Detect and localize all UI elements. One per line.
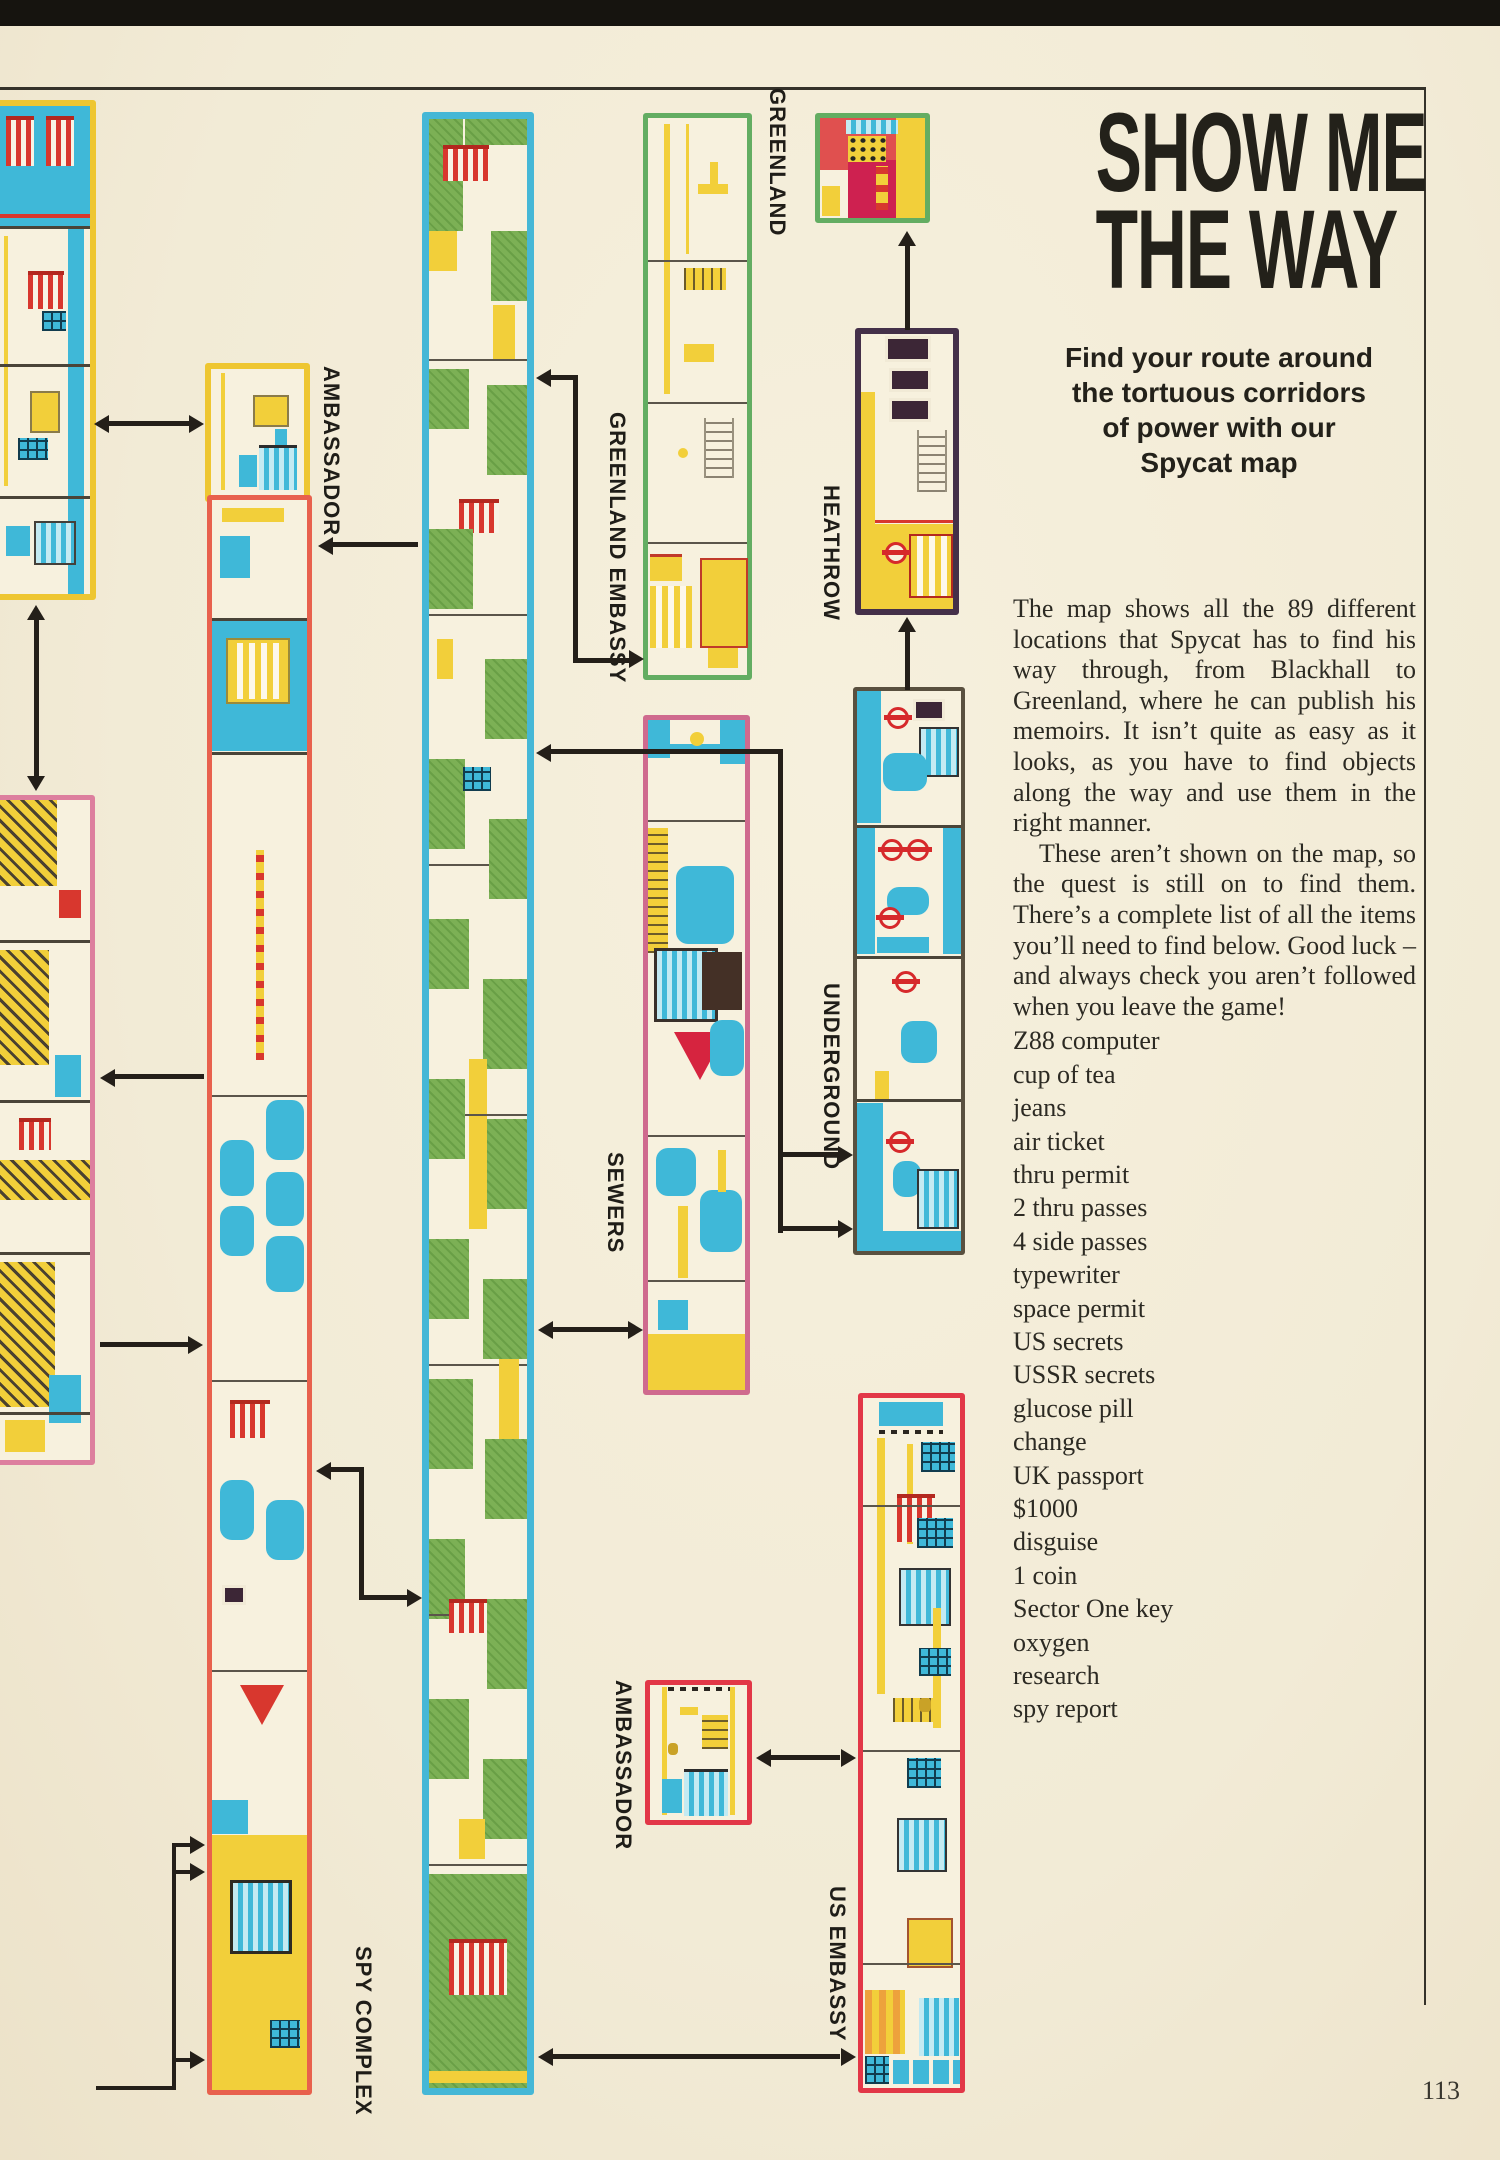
map-underground <box>853 687 965 1255</box>
map-detail <box>212 1380 307 1382</box>
map-greenland-embassy <box>643 113 752 680</box>
arrow-head <box>841 1749 856 1767</box>
map-detail <box>684 1769 728 1816</box>
map-detail <box>429 359 527 361</box>
map-detail <box>483 1759 527 1839</box>
map-detail <box>487 385 527 475</box>
map-detail <box>34 521 76 565</box>
arrow-line <box>783 1226 840 1231</box>
map-detail <box>437 639 453 679</box>
standfirst-line: the tortuous corridors <box>1020 375 1418 410</box>
map-detail <box>259 445 297 490</box>
arrow-line <box>172 1843 176 2067</box>
map-detail <box>907 1758 941 1788</box>
arrow-line <box>573 658 631 663</box>
map-detail <box>266 1100 304 1160</box>
map-detail <box>429 1379 473 1469</box>
list-item: disguise <box>1013 1525 1416 1558</box>
map-detail <box>668 1743 678 1755</box>
page-number: 113 <box>1380 2076 1460 2106</box>
map-detail <box>49 1375 81 1423</box>
map-detail <box>28 271 64 309</box>
map-detail <box>730 1687 735 1815</box>
map-detail <box>933 2060 949 2084</box>
map-detail <box>857 1099 961 1102</box>
map-detail <box>846 120 898 134</box>
map-detail <box>943 828 961 954</box>
map-detail <box>889 368 931 392</box>
map-detail <box>883 753 927 791</box>
map-ambassador-top <box>205 363 310 502</box>
map-detail <box>863 1963 960 1965</box>
map-detail <box>59 890 81 918</box>
map-detail <box>897 1818 947 1872</box>
map-detail <box>4 236 8 486</box>
underground-roundel-icon <box>879 907 901 929</box>
map-detail <box>429 1699 469 1779</box>
top-black-bar <box>0 0 1500 26</box>
map-detail <box>459 1819 485 1859</box>
arrow-head <box>538 1321 553 1339</box>
map-heathrow <box>855 328 959 615</box>
arrow-line <box>172 2067 176 2090</box>
map-detail <box>857 956 961 959</box>
map-detail <box>6 116 34 166</box>
map-detail <box>919 1998 959 2056</box>
map-detail <box>648 1280 745 1282</box>
map-detail <box>690 732 704 746</box>
map-detail <box>822 186 840 216</box>
map-ambassador-bottom <box>645 1680 752 1825</box>
map-detail <box>0 214 90 218</box>
map-detail <box>919 1648 951 1676</box>
label-spy-complex: SPY COMPLEX <box>350 1946 376 2116</box>
column-rule <box>1424 87 1426 2005</box>
map-spy-complex-strip <box>422 112 534 2095</box>
map-detail <box>863 1750 960 1752</box>
list-item: air ticket <box>1013 1125 1416 1158</box>
list-item: thru permit <box>1013 1158 1416 1191</box>
map-detail <box>662 1779 682 1813</box>
map-detail <box>913 2060 929 2084</box>
arrow-line <box>114 1074 204 1079</box>
arrow-head <box>316 1462 331 1480</box>
map-detail <box>429 529 473 609</box>
map-detail <box>30 391 60 433</box>
map-strip-left-top <box>0 100 96 600</box>
underground-roundel-icon <box>887 707 909 729</box>
map-detail <box>879 1430 943 1434</box>
map-detail <box>221 373 225 490</box>
map-detail <box>449 1939 507 1995</box>
map-detail <box>704 418 734 478</box>
map-detail <box>253 395 289 427</box>
arrow-head <box>756 1749 771 1767</box>
underground-roundel-icon <box>885 542 907 564</box>
map-detail <box>270 2020 300 2048</box>
list-item: Z88 computer <box>1013 1024 1416 1057</box>
map-detail <box>648 820 745 822</box>
list-item: 4 side passes <box>1013 1225 1416 1258</box>
map-detail <box>700 1190 742 1252</box>
map-detail <box>700 558 748 648</box>
arrow-line <box>770 1755 840 1760</box>
arrow-head <box>189 415 204 433</box>
map-detail <box>702 1715 728 1749</box>
list-item: research <box>1013 1659 1416 1692</box>
arrow-line <box>108 421 198 426</box>
map-detail <box>678 448 688 458</box>
map-us-embassy <box>858 1393 965 2093</box>
map-detail <box>710 162 718 186</box>
paragraph: These aren’t shown on the map, so the qu… <box>1013 839 1416 1023</box>
map-detail <box>222 1585 246 1605</box>
map-detail <box>230 1400 270 1438</box>
list-item: jeans <box>1013 1091 1416 1124</box>
map-detail <box>896 118 925 218</box>
map-detail <box>220 1206 254 1256</box>
arrow-line <box>905 246 910 330</box>
map-detail <box>907 1918 953 1968</box>
map-detail <box>0 1252 90 1255</box>
arrow-head <box>94 415 109 433</box>
label-sewers: SEWERS <box>602 1152 628 1253</box>
map-detail <box>491 231 527 301</box>
list-item: $1000 <box>1013 1492 1416 1525</box>
label-us-embassy: US EMBASSY <box>824 1886 850 2041</box>
map-detail <box>702 952 742 1010</box>
paragraph: The map shows all the 89 different locat… <box>1013 594 1416 839</box>
list-item: cup of tea <box>1013 1058 1416 1091</box>
map-detail <box>648 260 747 262</box>
map-detail <box>877 937 929 953</box>
arrow-head <box>898 617 916 632</box>
map-detail <box>6 526 30 556</box>
article-body: The map shows all the 89 different locat… <box>1013 594 1416 1726</box>
map-detail <box>0 940 90 943</box>
map-detail <box>684 268 726 290</box>
map-detail <box>917 1169 959 1229</box>
map-detail <box>720 720 745 764</box>
map-detail <box>893 2060 909 2084</box>
map-detail <box>650 586 692 648</box>
list-item: typewriter <box>1013 1258 1416 1291</box>
arrow-head <box>838 1220 853 1238</box>
map-detail <box>857 1231 961 1251</box>
label-underground: UNDERGROUND <box>818 983 844 1170</box>
arrow-head <box>536 369 551 387</box>
map-sewers <box>643 715 750 1395</box>
map-detail <box>239 455 257 487</box>
arrow-line <box>96 2086 174 2090</box>
map-detail <box>443 145 489 181</box>
map-detail <box>5 1420 45 1452</box>
map-detail <box>42 311 66 331</box>
map-detail <box>0 1100 90 1103</box>
arrow-line <box>905 632 910 690</box>
arrow-head <box>100 1069 115 1087</box>
map-detail <box>0 364 90 367</box>
arrow-head <box>190 2051 205 2069</box>
map-detail <box>19 1118 51 1150</box>
map-detail <box>718 1150 726 1192</box>
arrow-head <box>27 776 45 791</box>
map-detail <box>429 369 469 429</box>
map-detail <box>684 344 714 362</box>
map-detail <box>865 1990 905 2054</box>
map-detail <box>493 305 515 359</box>
map-detail <box>487 1119 527 1209</box>
arrow-head <box>407 1589 422 1607</box>
map-greenland <box>815 113 930 223</box>
map-detail <box>429 759 465 849</box>
arrow-line <box>34 620 39 776</box>
arrow-line <box>359 1467 364 1600</box>
map-detail <box>875 520 953 523</box>
map-detail <box>861 392 875 609</box>
map-detail <box>212 1800 248 1834</box>
label-greenland: GREENLAND <box>764 88 790 236</box>
list-item: oxygen <box>1013 1626 1416 1659</box>
map-detail <box>648 1135 745 1137</box>
map-detail <box>220 1480 254 1540</box>
masthead: SHOW ME THE WAY <box>1020 104 1418 298</box>
map-detail <box>668 1687 730 1691</box>
list-item: change <box>1013 1425 1416 1458</box>
map-detail <box>220 1140 254 1196</box>
map-detail <box>0 950 49 1065</box>
arrow-head <box>629 650 644 668</box>
arrow-head <box>898 231 916 246</box>
map-detail <box>0 496 90 499</box>
map-detail <box>0 1262 55 1407</box>
map-detail <box>848 160 896 218</box>
map-detail <box>429 231 457 271</box>
item-list: Z88 computer cup of tea jeans air ticket… <box>1013 1024 1416 1726</box>
map-detail <box>499 1359 519 1439</box>
label-greenland-embassy: GREENLAND EMBASSY <box>604 412 630 683</box>
standfirst-line: Find your route around <box>1020 340 1418 375</box>
map-detail <box>489 819 527 899</box>
list-item: spy report <box>1013 1692 1416 1725</box>
map-detail <box>429 1864 527 1866</box>
arrow-head <box>318 537 333 555</box>
map-detail <box>708 648 738 668</box>
map-detail <box>212 1670 307 1672</box>
arrow-head <box>838 1146 853 1164</box>
underground-roundel-icon <box>895 971 917 993</box>
map-detail <box>483 979 527 1069</box>
arrow-head <box>27 605 45 620</box>
map-detail <box>648 828 668 953</box>
map-detail <box>463 767 491 791</box>
map-detail <box>676 866 734 944</box>
map-detail <box>485 1439 527 1519</box>
map-detail <box>656 1148 696 1196</box>
map-detail <box>857 828 875 954</box>
map-detail <box>648 1334 745 1390</box>
map-detail <box>917 430 947 492</box>
arrow-line <box>364 1595 410 1600</box>
map-detail <box>863 1505 960 1507</box>
arrow-line <box>100 1342 190 1347</box>
arrow-head <box>190 1863 205 1881</box>
label-heathrow: HEATHROW <box>818 485 844 621</box>
list-item: USSR secrets <box>1013 1358 1416 1391</box>
map-detail <box>953 2060 960 2084</box>
arrow-line <box>778 749 783 1233</box>
arrow-head <box>188 1336 203 1354</box>
list-item: 2 thru passes <box>1013 1191 1416 1224</box>
underground-roundel-icon <box>907 839 929 861</box>
arrow-head <box>538 2048 553 2066</box>
arrow-line <box>552 1327 630 1332</box>
label-ambassador-bottom: AMBASSADOR <box>610 1680 636 1850</box>
map-detail <box>256 850 264 1060</box>
map-detail <box>266 1172 304 1226</box>
map-detail <box>917 1518 953 1548</box>
map-detail <box>429 919 469 989</box>
map-detail <box>55 1055 81 1097</box>
map-detail <box>212 1835 307 2090</box>
label-ambassador-top: AMBASSADOR <box>318 366 344 536</box>
map-detail <box>0 1412 90 1415</box>
list-item: glucose pill <box>1013 1392 1416 1425</box>
map-detail <box>483 1279 527 1359</box>
map-detail <box>885 336 931 362</box>
map-detail <box>877 1438 885 1694</box>
map-detail <box>220 536 250 578</box>
map-detail <box>710 1020 744 1076</box>
map-detail <box>469 1059 487 1229</box>
map-detail <box>909 534 953 598</box>
map-detail <box>899 1568 951 1626</box>
map-detail <box>879 1402 943 1426</box>
map-detail <box>429 1239 469 1319</box>
map-detail <box>680 1707 698 1715</box>
map-detail <box>901 1021 937 1063</box>
map-detail <box>648 542 747 544</box>
map-detail <box>429 2071 527 2083</box>
arrow-line <box>573 375 578 663</box>
arrow-head <box>628 1321 643 1339</box>
arrow-line <box>332 542 418 547</box>
arrow-head <box>536 744 551 762</box>
standfirst-line: Spycat map <box>1020 445 1418 480</box>
map-detail <box>658 1300 688 1330</box>
list-item: Sector One key <box>1013 1592 1416 1625</box>
map-detail <box>266 1500 304 1560</box>
map-detail <box>240 1685 284 1725</box>
map-detail <box>429 614 527 616</box>
map-detail <box>865 2056 889 2084</box>
map-detail <box>686 124 689 254</box>
map-detail <box>485 659 527 739</box>
map-detail <box>212 1095 307 1097</box>
underground-roundel-icon <box>881 839 903 861</box>
map-detail <box>222 508 284 522</box>
map-detail <box>459 499 499 533</box>
map-strip-left-bottom <box>0 795 95 1465</box>
map-detail <box>275 429 287 445</box>
map-detail <box>921 1442 955 1472</box>
map-detail <box>0 1160 90 1200</box>
arrow-line <box>552 2054 840 2059</box>
map-detail <box>875 1071 889 1099</box>
map-detail <box>648 402 747 404</box>
map-detail <box>230 1880 292 1954</box>
map-detail <box>889 398 931 422</box>
map-detail <box>678 1206 688 1278</box>
list-item: US secrets <box>1013 1325 1416 1358</box>
map-detail <box>919 1698 931 1712</box>
standfirst: Find your route around the tortuous corr… <box>1020 340 1418 480</box>
map-detail <box>46 116 74 166</box>
arrow-line <box>550 749 783 754</box>
map-detail <box>0 800 57 886</box>
map-detail <box>465 119 527 145</box>
list-item: 1 coin <box>1013 1559 1416 1592</box>
list-item: space permit <box>1013 1292 1416 1325</box>
page-title-line2: THE WAY <box>1096 201 1343 298</box>
map-detail <box>857 691 881 823</box>
arrow-head <box>190 1836 205 1854</box>
underground-roundel-icon <box>889 1131 911 1153</box>
map-detail <box>212 752 307 755</box>
map-strip-middle <box>207 495 312 2095</box>
map-detail <box>429 1079 465 1159</box>
map-detail <box>266 1236 304 1292</box>
standfirst-line: of power with our <box>1020 410 1418 445</box>
arrow-head <box>841 2048 856 2066</box>
map-detail <box>228 640 288 702</box>
list-item: UK passport <box>1013 1459 1416 1492</box>
map-detail <box>876 166 888 210</box>
map-detail <box>857 1103 883 1251</box>
magazine-page: SHOW ME THE WAY Find your route around t… <box>0 0 1500 2160</box>
map-detail <box>848 136 886 162</box>
map-detail <box>664 124 670 394</box>
map-detail <box>913 699 945 721</box>
map-detail <box>650 554 682 581</box>
map-detail <box>449 1599 489 1633</box>
map-detail <box>487 1599 527 1689</box>
arrow-line <box>783 1152 840 1157</box>
map-detail <box>18 438 48 460</box>
